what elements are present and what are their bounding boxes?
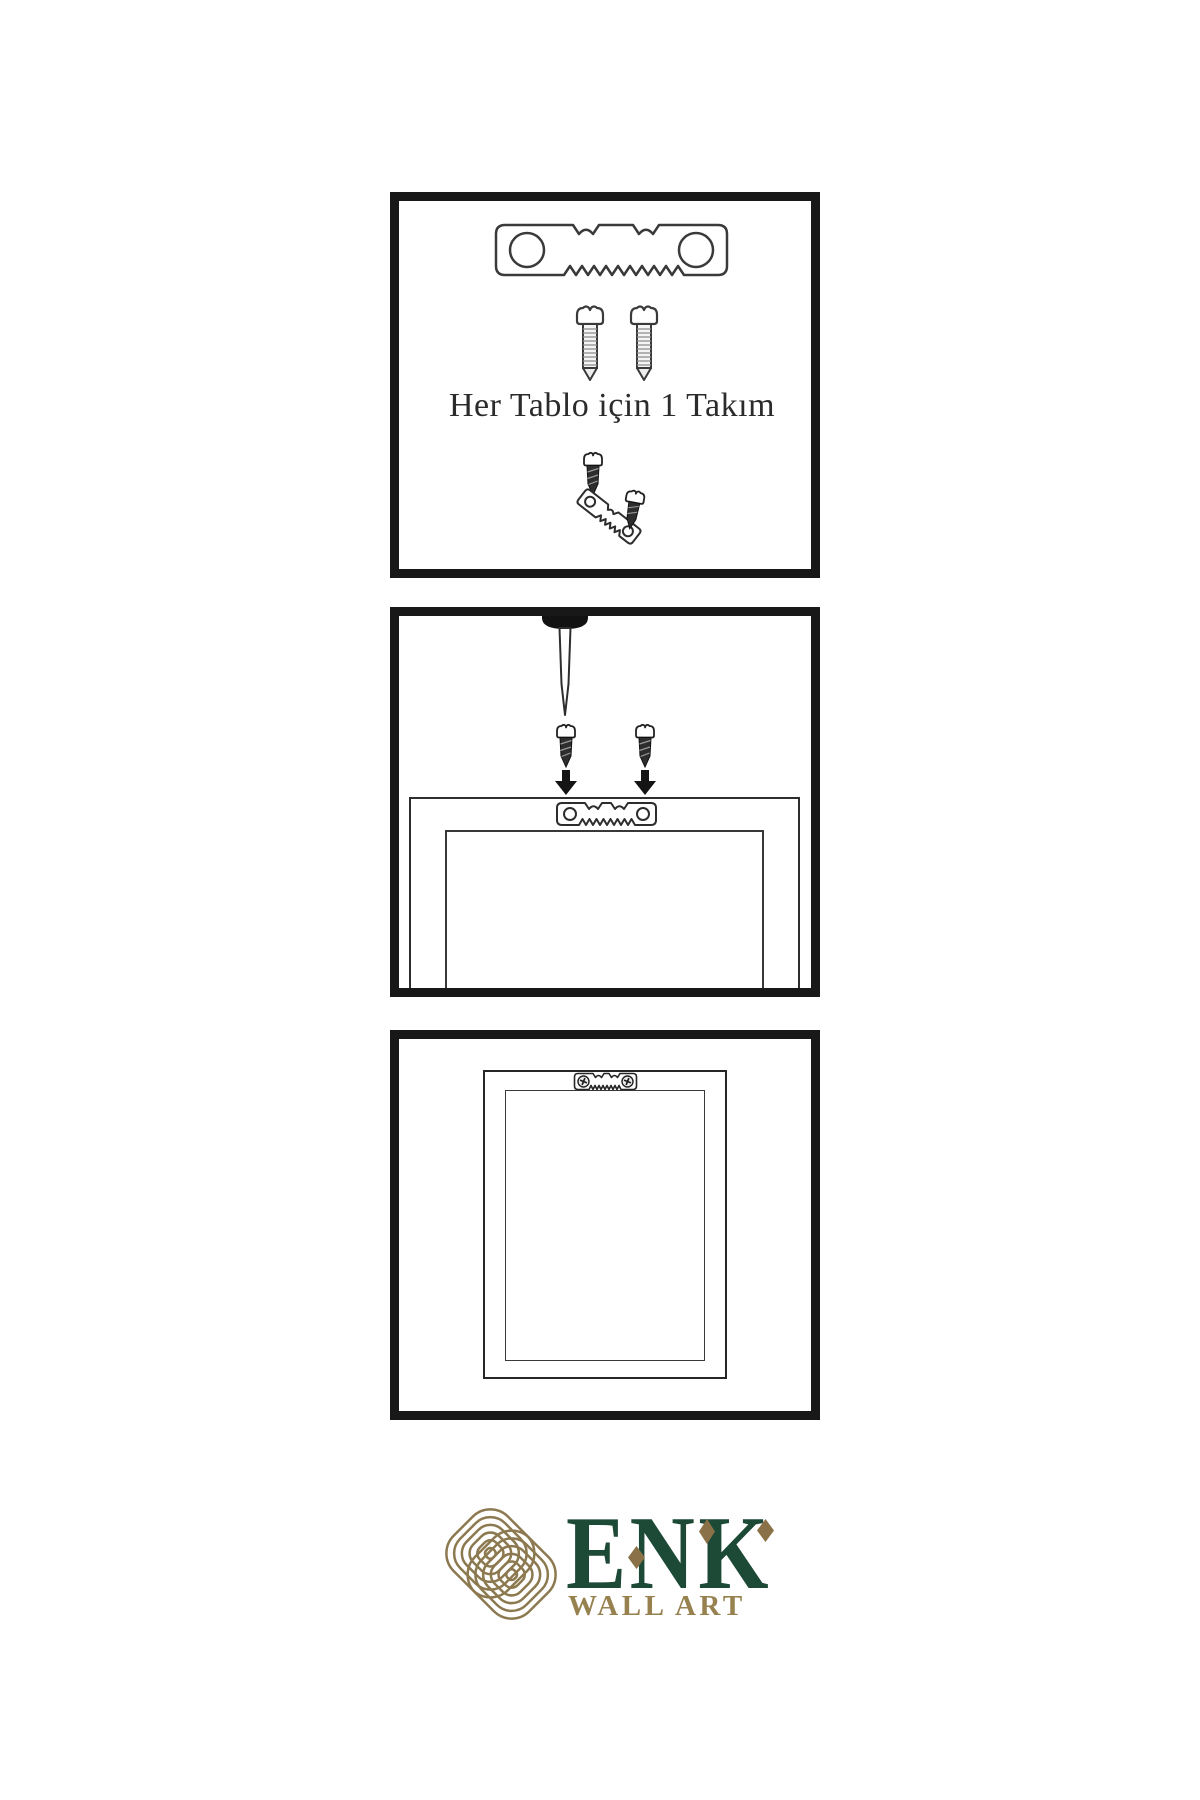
screw-icon xyxy=(628,304,660,382)
frame-back-inner-outline xyxy=(505,1090,705,1361)
screw-dark-icon xyxy=(634,723,656,769)
panel-install-step xyxy=(390,607,820,997)
wall-nail-icon xyxy=(540,616,590,718)
arrow-down-icon xyxy=(633,770,657,796)
screw-icon xyxy=(574,304,606,382)
instruction-sheet: Her Tablo için 1 Takım xyxy=(0,0,1200,1800)
panel-hardware-kit: Her Tablo için 1 Takım xyxy=(390,192,820,578)
sawtooth-hanger-installed-icon xyxy=(573,1072,638,1091)
sawtooth-hanger-icon xyxy=(494,223,729,277)
kit-caption: Her Tablo için 1 Takım xyxy=(399,387,811,425)
brand-subtitle: WALL ART xyxy=(568,1592,746,1621)
screw-dark-icon xyxy=(619,487,648,532)
screw-dark-icon xyxy=(555,723,577,769)
frame-back-inner-outline xyxy=(445,830,764,997)
sawtooth-hanger-icon xyxy=(555,801,658,827)
panel-hung-frame xyxy=(390,1030,820,1420)
arrow-down-icon xyxy=(554,770,578,796)
knot-logo-icon xyxy=(435,1498,567,1630)
